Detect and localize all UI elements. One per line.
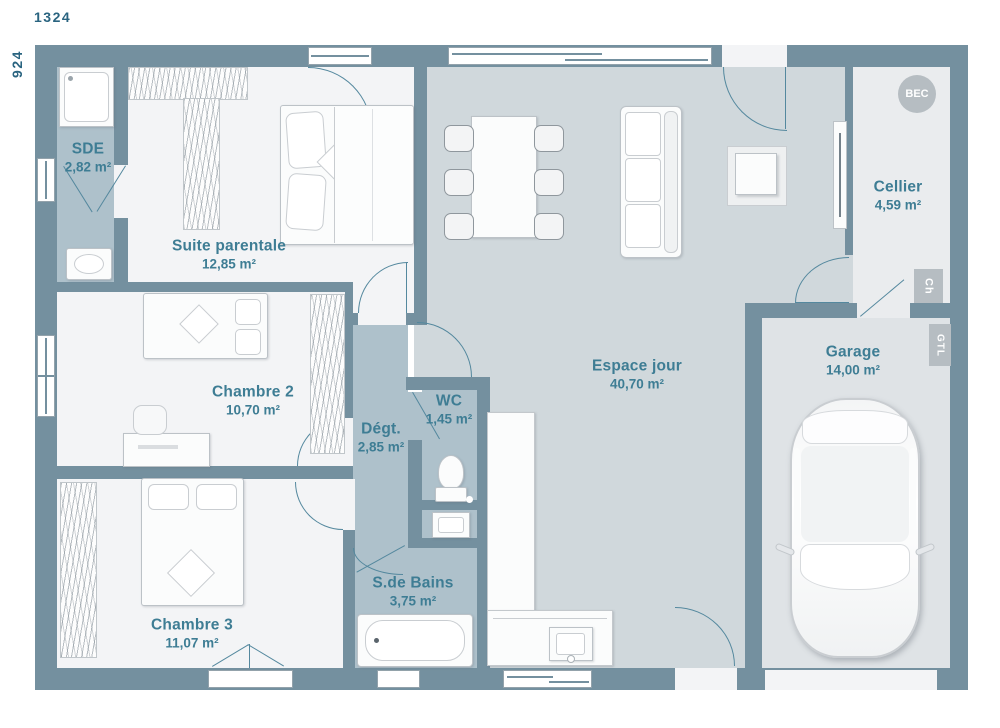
car-windshield: [800, 544, 910, 590]
room-label-garage: Garage 14,00 m²: [826, 343, 881, 378]
gtl-tag: GTL: [929, 324, 951, 366]
bay-window-espace-top: [448, 47, 712, 65]
chambre3-pillow-2: [196, 484, 237, 510]
wall-garage-top-left: [745, 303, 857, 318]
shower-drain: [68, 76, 73, 81]
wall-living-left: [414, 67, 427, 313]
bay-window-rail-2: [565, 59, 708, 61]
dining-chair-right-1: [534, 125, 564, 152]
car-rear-window: [802, 410, 908, 444]
door-gap-chambre2: [345, 418, 353, 466]
window-kitchen-bottom: [503, 670, 592, 688]
dining-chair-right-2: [534, 169, 564, 196]
window-kitchen-rail-2: [549, 681, 589, 683]
sofa-backrest: [664, 111, 678, 253]
chambre2-pillow-2: [235, 329, 261, 355]
window-sdb-bottom: [377, 670, 420, 688]
room-label-degagement: Dégt. 2,85 m²: [358, 420, 405, 455]
room-label-chambre-3: Chambre 3 11,07 m²: [151, 616, 233, 651]
chambre3-closet: [60, 482, 97, 658]
dining-chair-left-1: [444, 125, 474, 152]
chambre2-chair: [133, 405, 167, 435]
floor-plan: 1324 924: [0, 0, 1000, 728]
side-table-top: [735, 153, 777, 195]
dimension-height-label: 924: [9, 36, 27, 92]
room-label-suite-parentale: Suite parentale 12,85 m²: [172, 237, 286, 272]
window-kitchen-rail-1: [507, 676, 553, 678]
wall-chambre2-right: [345, 292, 353, 418]
wall-wc-bottom: [408, 538, 490, 548]
car-side-window-left: [794, 448, 800, 536]
wall-sde-suite-lower: [114, 218, 128, 282]
window-chambre2-frame-2: [45, 338, 47, 414]
room-label-salle-de-bains: S.de Bains 3,75 m²: [372, 574, 453, 609]
wall-garage-top-right: [910, 303, 968, 318]
door-gap-entry: [722, 45, 787, 67]
wall-garage-left: [745, 318, 762, 690]
sde-washbasin-bowl: [74, 254, 104, 274]
suite-bed-pillow-2: [285, 173, 327, 232]
suite-dressing-side: [183, 98, 220, 230]
suite-dressing-top: [128, 67, 248, 100]
floor-espace-jour-mid: [427, 303, 745, 377]
room-label-wc: WC 1,45 m²: [426, 392, 473, 427]
window-suite-top-frame: [311, 55, 369, 57]
wall-exterior-right: [950, 45, 968, 690]
dining-chair-left-3: [444, 213, 474, 240]
chambre2-closet: [310, 294, 345, 454]
wall-chambre2-top: [57, 282, 353, 292]
bathtub-basin: [365, 620, 465, 661]
bay-window-rail-1: [452, 53, 602, 55]
wc-toilet-tank: [435, 487, 467, 502]
door-gap-chambre3: [343, 479, 355, 530]
kitchen-sink-bowl: [556, 633, 585, 655]
window-chambre3-bottom: [208, 670, 293, 688]
bec-badge: BEC: [898, 75, 936, 113]
water-heater-tag: Ch: [914, 269, 943, 303]
car-roof: [801, 446, 909, 542]
wc-washbasin-bowl: [438, 517, 464, 533]
wc-wall-dot: [466, 496, 473, 503]
room-label-cellier: Cellier 4,59 m²: [874, 178, 923, 213]
wc-toilet-bowl: [438, 455, 464, 489]
chambre2-desk-item: [138, 445, 178, 449]
suite-bed-duvet: [334, 107, 413, 243]
dimension-width-label: 1324: [34, 9, 71, 25]
kitchen-sink-tap: [567, 655, 575, 663]
window-sde-left-frame: [45, 161, 47, 199]
sofa-cushion-1: [625, 112, 661, 156]
chambre3-pillow-1: [148, 484, 189, 510]
kitchen-counter-edge: [493, 618, 607, 619]
dining-chair-left-2: [444, 169, 474, 196]
dining-table: [471, 116, 537, 238]
kitchen-counter-vertical: [487, 412, 535, 612]
garage-door-opening: [765, 670, 937, 690]
sofa-cushion-2: [625, 158, 661, 202]
room-label-chambre-2: Chambre 2 10,70 m²: [212, 383, 294, 418]
wall-wc-left: [408, 440, 422, 548]
window-chambre3-casement-mid: [249, 644, 250, 668]
cellier-sliding-door-rail: [839, 133, 841, 217]
chambre2-pillow-1: [235, 299, 261, 325]
bathtub-drain: [374, 638, 379, 643]
room-label-espace-jour: Espace jour 40,70 m²: [592, 357, 682, 392]
door-gap-suite-degagement: [358, 313, 406, 325]
suite-bed-fold: [372, 109, 373, 241]
dining-chair-right-3: [534, 213, 564, 240]
chambre2-desk: [123, 433, 210, 467]
room-label-sde: SDE 2,82 m²: [65, 140, 112, 175]
car-side-window-right: [910, 448, 916, 536]
door-gap-espace-south: [675, 668, 737, 690]
wall-sde-suite-upper: [114, 67, 128, 165]
sofa-cushion-3: [625, 204, 661, 248]
